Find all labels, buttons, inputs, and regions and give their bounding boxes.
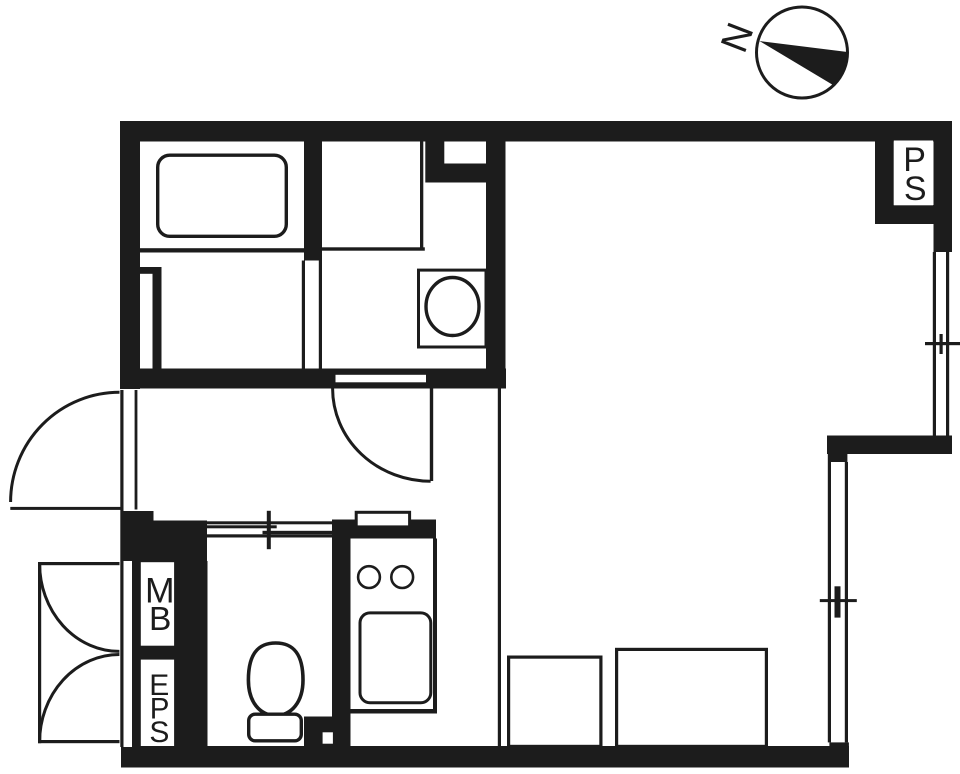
svg-text:B: B bbox=[149, 601, 171, 638]
svg-text:S: S bbox=[149, 716, 169, 749]
svg-text:S: S bbox=[904, 170, 927, 208]
